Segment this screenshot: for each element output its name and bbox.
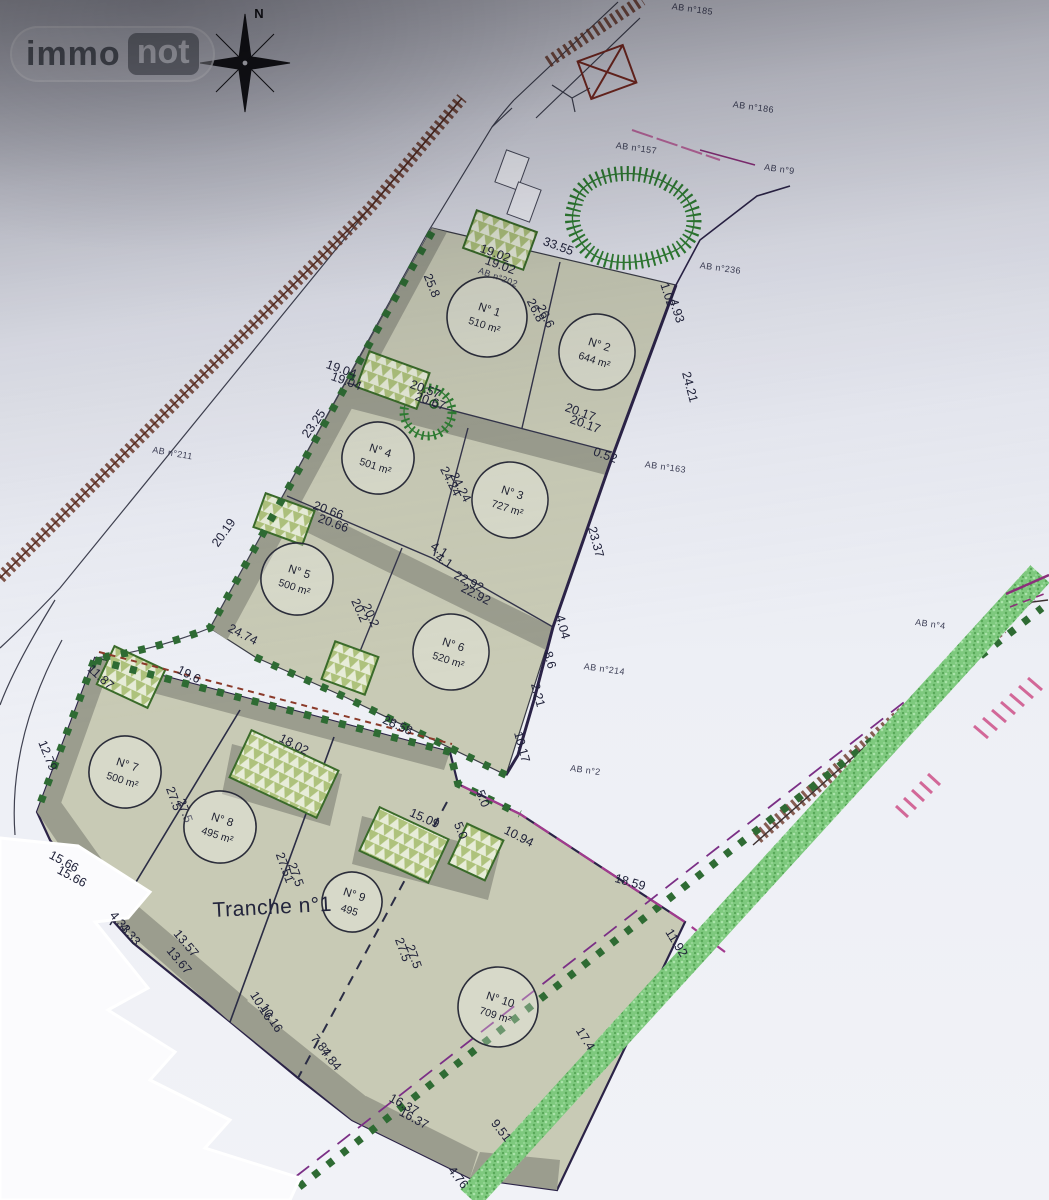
compass-north-label: N — [254, 6, 263, 21]
logo-text-immo: immo — [26, 35, 121, 74]
site-plan-photo: 33.5519.0219.0225.826.826.61.024.9324.21… — [0, 0, 1049, 1200]
subdivision-plan: 33.5519.0219.0225.826.826.61.024.9324.21… — [0, 0, 1049, 1200]
logo-text-not: not — [128, 33, 199, 75]
immonot-logo: immo not — [10, 26, 215, 82]
